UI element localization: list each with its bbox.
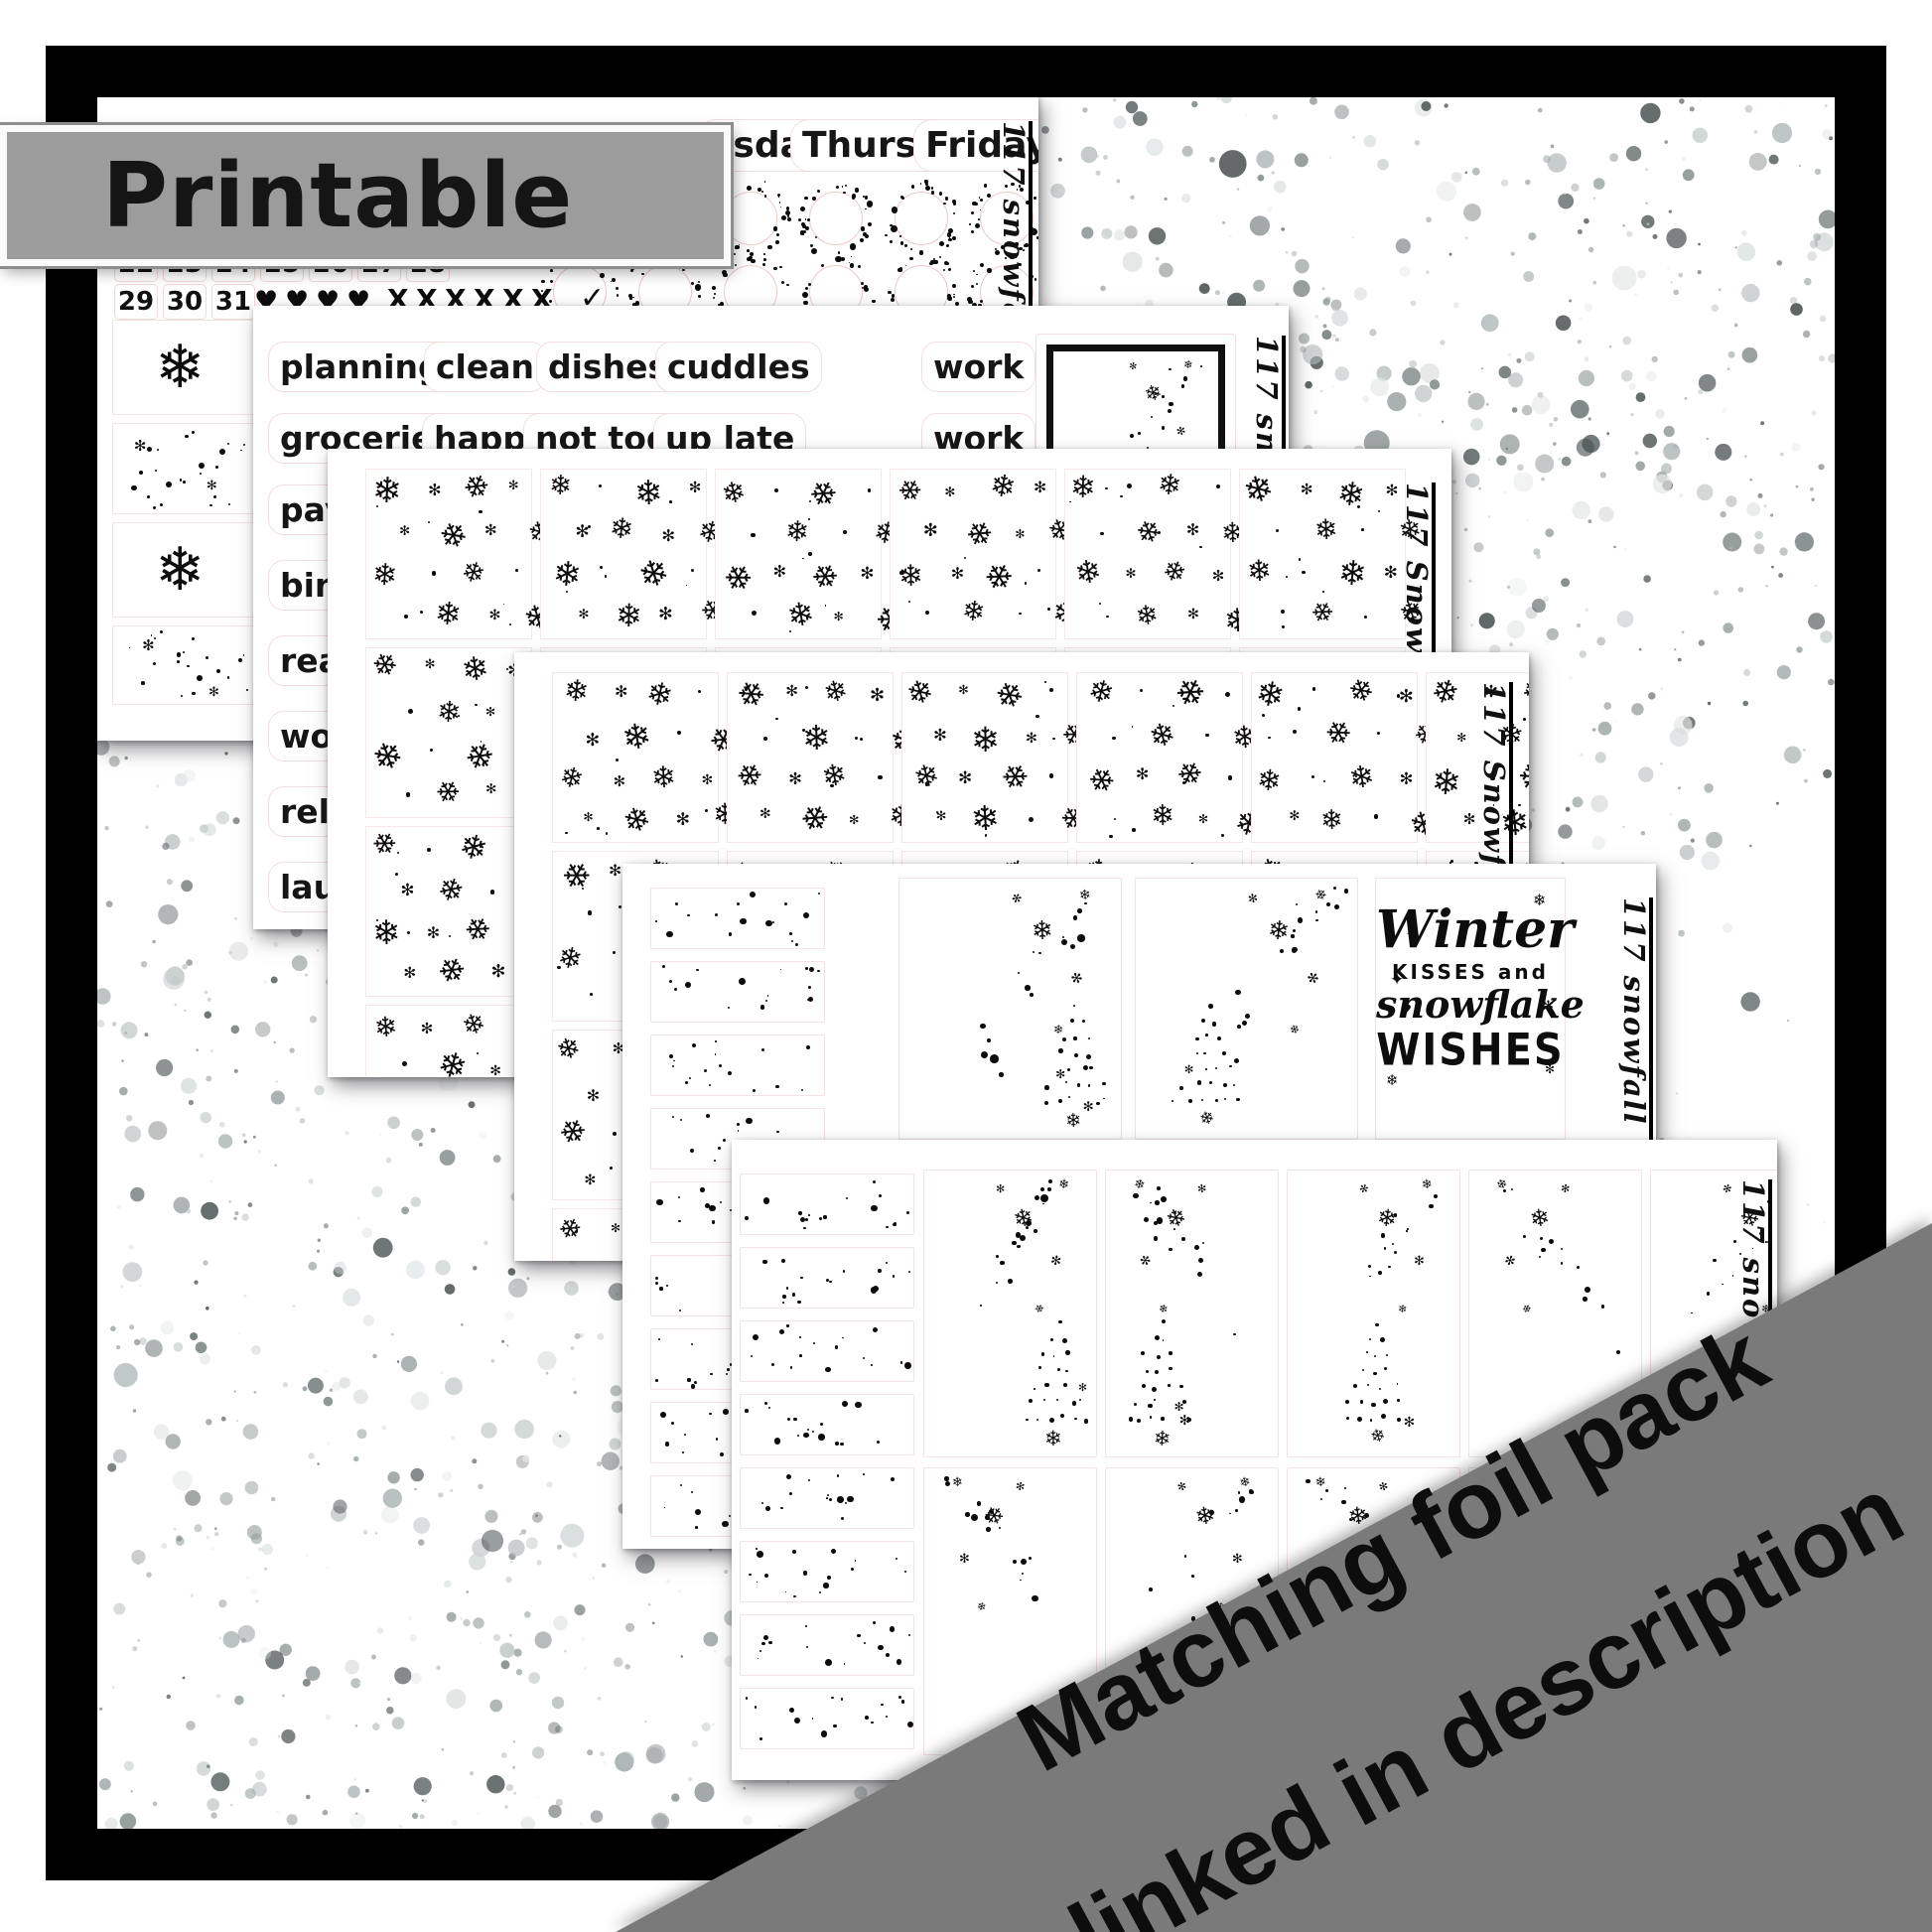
product-listing-image: 117 snowfall esdayThursdayFriday22232425… <box>0 0 1932 1932</box>
printable-badge: Printable <box>0 125 731 266</box>
printable-badge-label: Printable <box>102 144 573 248</box>
